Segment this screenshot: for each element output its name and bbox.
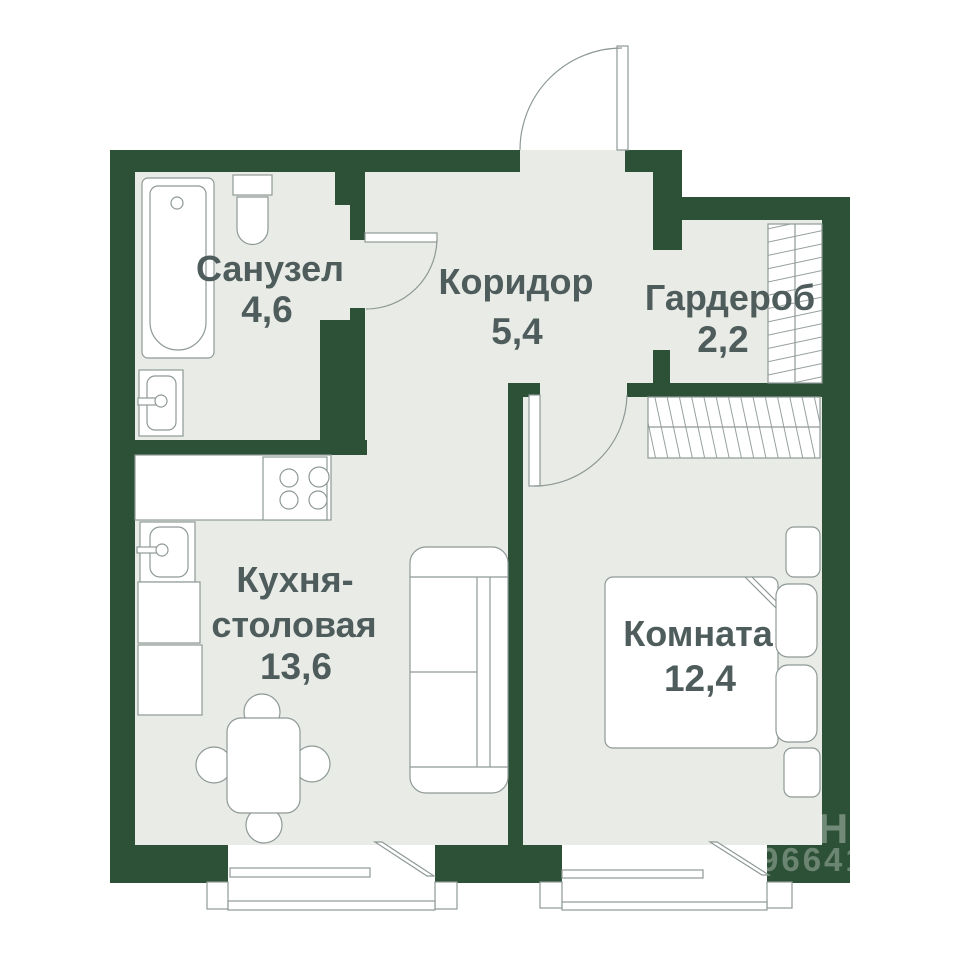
wall-bottom-seg1 [110, 845, 228, 883]
nightstand [786, 527, 820, 577]
kitchen-window-pier-left [207, 882, 228, 909]
kitchen-cabinet [138, 645, 202, 715]
wall-left [110, 150, 135, 883]
bathroom-label: Санузел [196, 248, 344, 289]
stove-burner [309, 467, 329, 487]
stove [263, 457, 327, 520]
room-window-pier-right [767, 882, 792, 908]
entry-door-swing-arc [520, 48, 622, 150]
wall-bathroom-right-top-b [350, 205, 365, 240]
wall-wardrobe-top [653, 197, 850, 220]
kitchen-sink-tap-knob [156, 544, 168, 556]
corridor-area: 5,4 [491, 311, 543, 352]
corridor-label: Коридор [439, 261, 594, 302]
room-window-pier-left [540, 882, 562, 908]
toilet-tank [233, 175, 272, 195]
room-label: Комната [623, 613, 774, 654]
stove-burner [280, 469, 298, 487]
wall-kitchen-room-divider [508, 397, 523, 845]
wardrobe-area: 2,2 [697, 319, 748, 360]
wall-bathroom-right-bottom-b [320, 320, 350, 443]
wardrobe-label: Гардероб [645, 277, 815, 318]
bathroom-door-leaf [365, 233, 437, 242]
stove-burner [309, 491, 327, 509]
wall-bottom-seg2 [435, 845, 562, 883]
floor-plan-screenshot: Санузел 4,6 Коридор 5,4 Гардероб 2,2 Кух… [0, 0, 960, 960]
nightstand [784, 748, 820, 797]
watermark-digits: 966414 [760, 841, 888, 878]
entry-door-leaf [617, 46, 628, 150]
kitchen-label-line1: Кухня- [236, 559, 353, 600]
kitchen-label-line2: столовая [211, 604, 376, 645]
wall-right [822, 197, 850, 883]
stove-burner [280, 491, 298, 509]
kitchen-cabinet [138, 582, 200, 643]
kitchen-window-sill [230, 868, 370, 877]
wall-bathroom-right-bottom-a [350, 308, 365, 455]
room-door-leaf [529, 395, 540, 486]
room-window-outer-band [562, 902, 767, 910]
kitchen-window-outer-band [228, 901, 435, 910]
bathroom-sink-tap-knob [155, 395, 167, 407]
toilet-bowl [237, 197, 268, 244]
bathtub-drain [171, 197, 183, 209]
wall-top-right [625, 150, 682, 172]
floor-plan: Санузел 4,6 Коридор 5,4 Гардероб 2,2 Кух… [0, 0, 960, 960]
wall-bathroom-right-top-a [335, 172, 365, 205]
pillow [776, 665, 817, 742]
kitchen-window-pier-right [435, 882, 457, 909]
room-area: 12,4 [664, 658, 736, 699]
kitchen-area: 13,6 [260, 646, 332, 687]
wall-room-top-b [627, 383, 822, 397]
dining-table [227, 718, 300, 813]
wall-top-left [110, 150, 520, 172]
room-window-sill [562, 870, 703, 878]
sofa [410, 547, 508, 793]
bathroom-area: 4,6 [241, 289, 292, 330]
pillow [776, 584, 817, 657]
wall-bathroom-bottom [110, 440, 367, 455]
